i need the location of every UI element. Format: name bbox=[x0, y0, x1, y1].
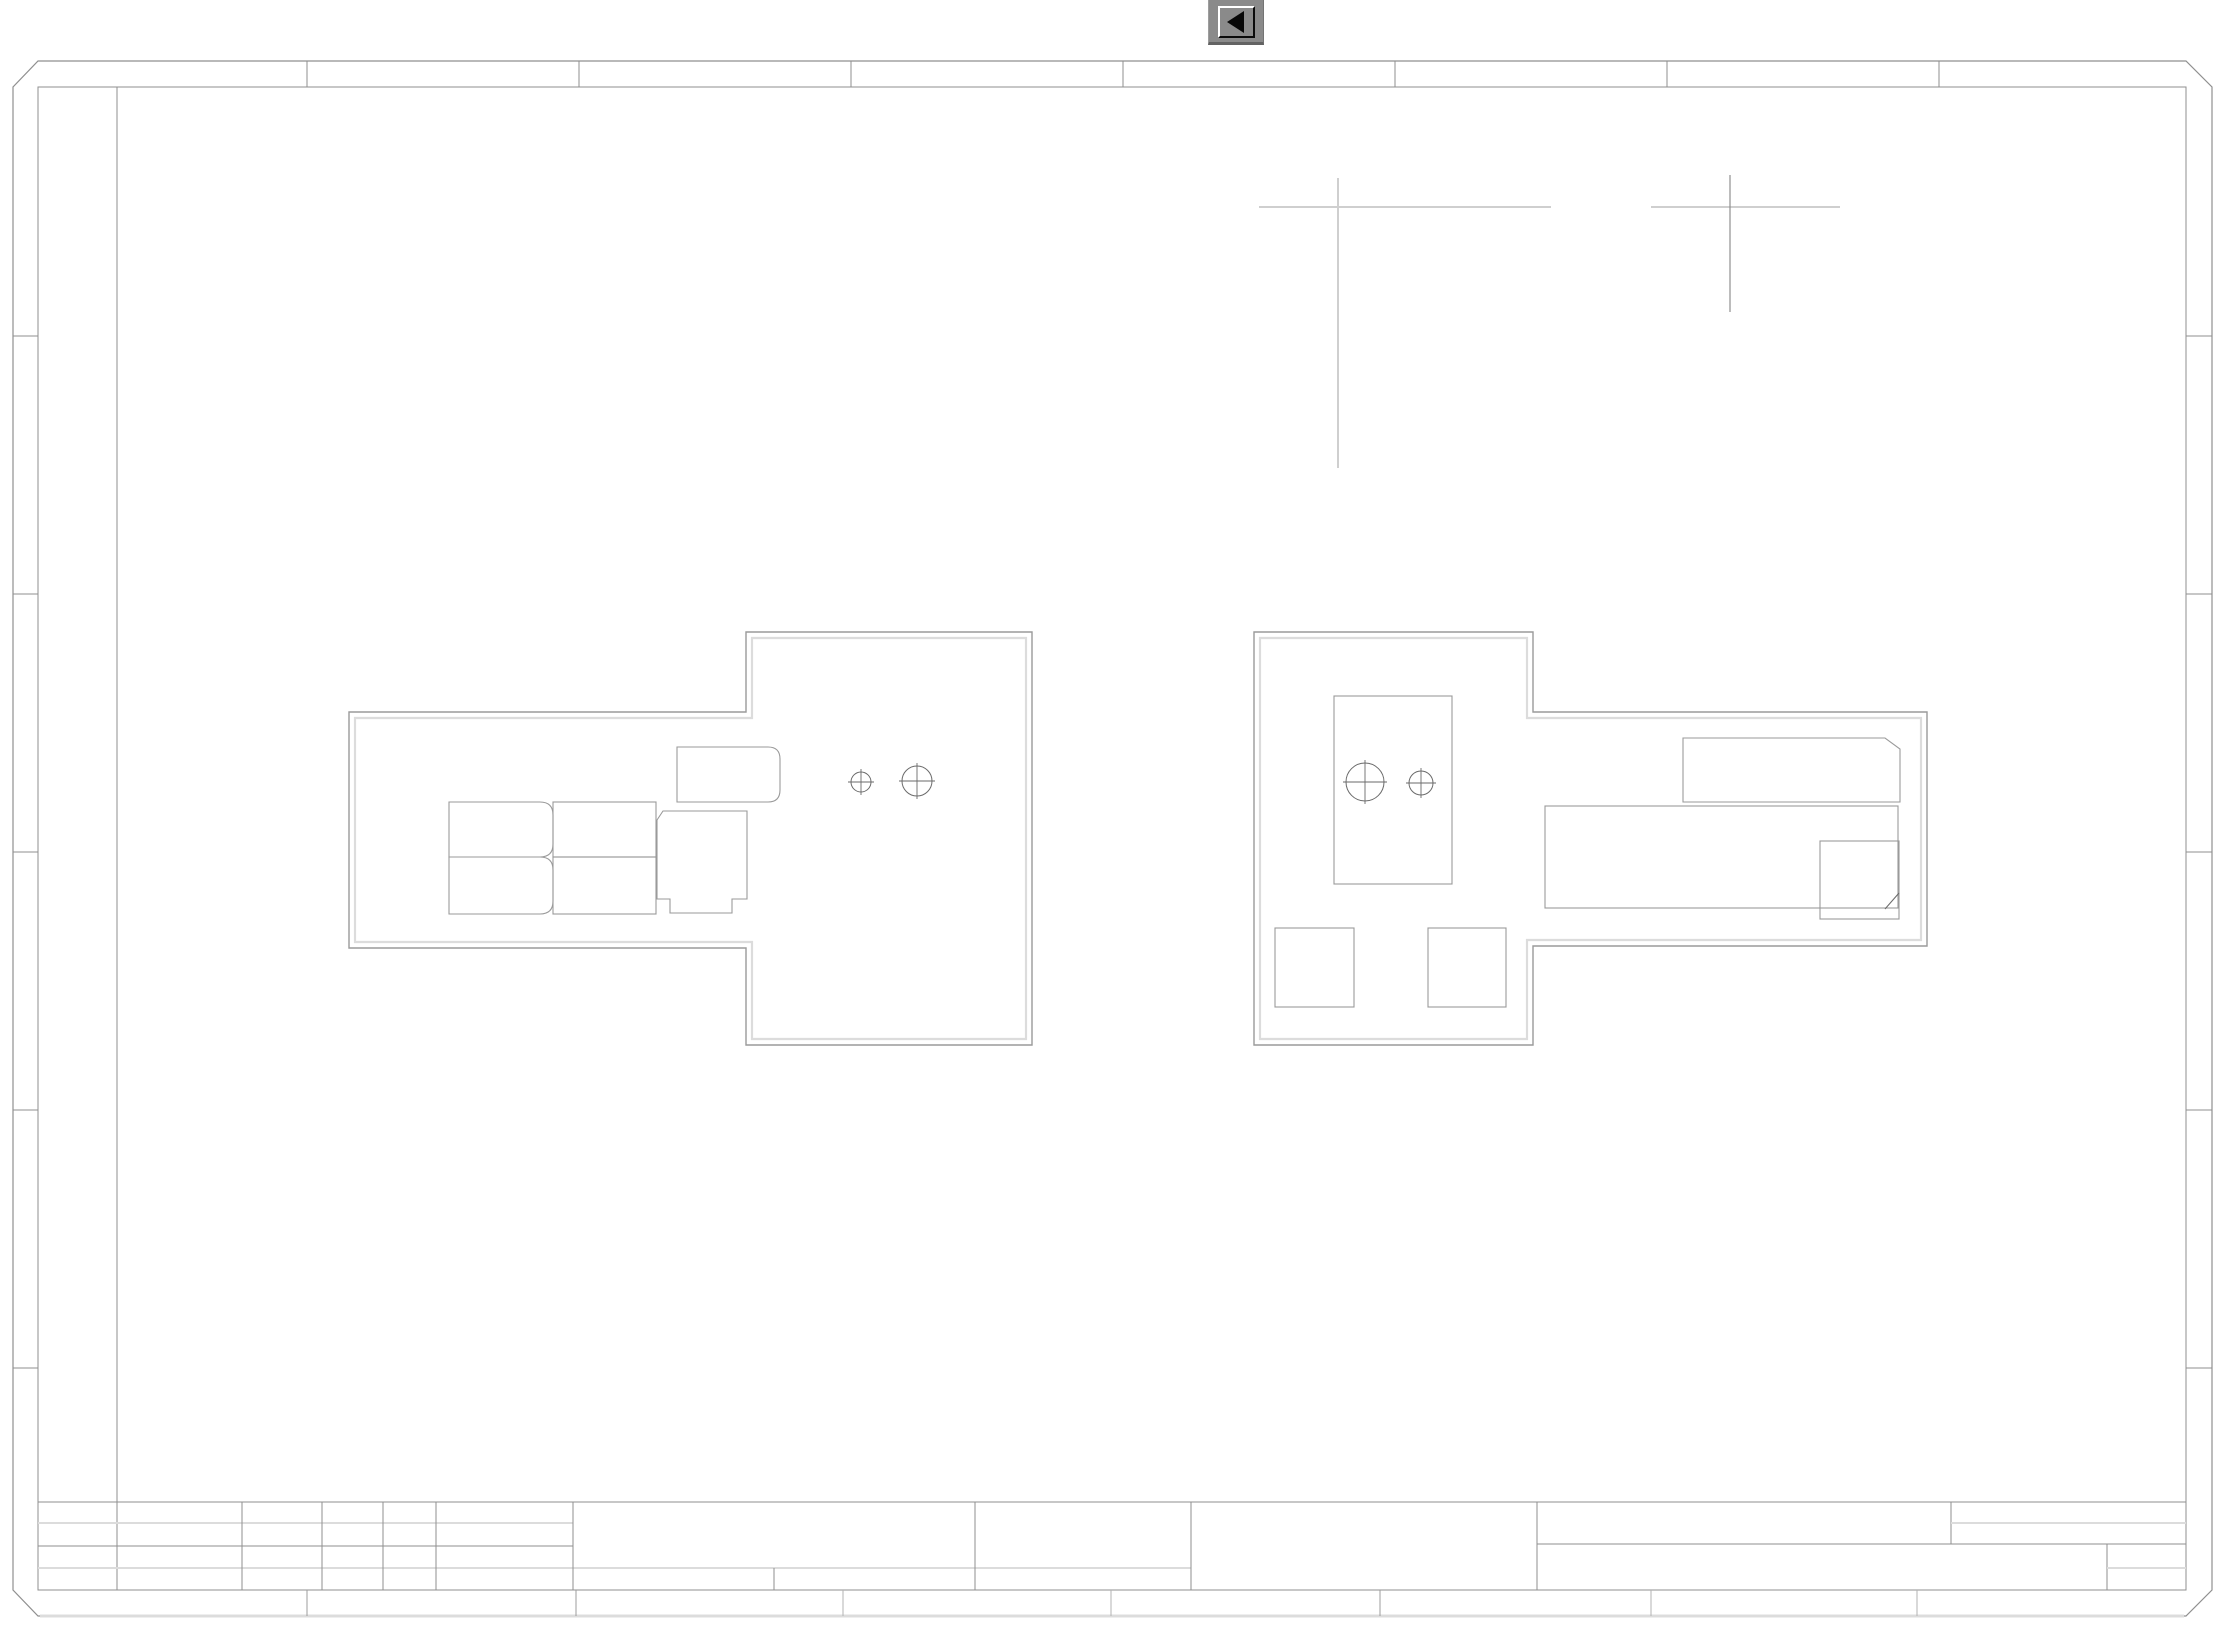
left-plan-wall-outer bbox=[349, 632, 1032, 1045]
right-plan-headboard bbox=[1683, 738, 1900, 802]
right-plan-table bbox=[1334, 696, 1452, 884]
sheet-inner-border bbox=[38, 87, 2186, 1590]
left-plan-cushion-tr bbox=[553, 802, 656, 857]
right-plan-stool-2 bbox=[1428, 928, 1506, 1007]
drawing-canvas bbox=[0, 0, 2223, 1625]
sheet-outer-border bbox=[13, 61, 2212, 1616]
app-window bbox=[0, 0, 2223, 1625]
back-triangle-icon bbox=[1227, 11, 1244, 33]
left-plan-chair bbox=[657, 811, 747, 913]
right-plan-bed bbox=[1545, 806, 1898, 908]
left-plan-cushion-tl bbox=[449, 802, 553, 857]
right-plan-wall-outer bbox=[1254, 632, 1927, 1045]
right-plan-stool-1 bbox=[1275, 928, 1354, 1007]
right-plan-wall-inner bbox=[1260, 638, 1921, 1039]
left-plan-cushion-bl bbox=[449, 857, 553, 914]
back-button[interactable] bbox=[1208, 0, 1264, 45]
back-button-bevel bbox=[1218, 6, 1255, 38]
left-plan-cushion-br bbox=[553, 857, 656, 914]
right-plan-pillow-chamfer bbox=[1885, 893, 1899, 909]
left-plan-cabinet bbox=[677, 747, 780, 802]
left-plan-wall-inner bbox=[355, 638, 1026, 1039]
